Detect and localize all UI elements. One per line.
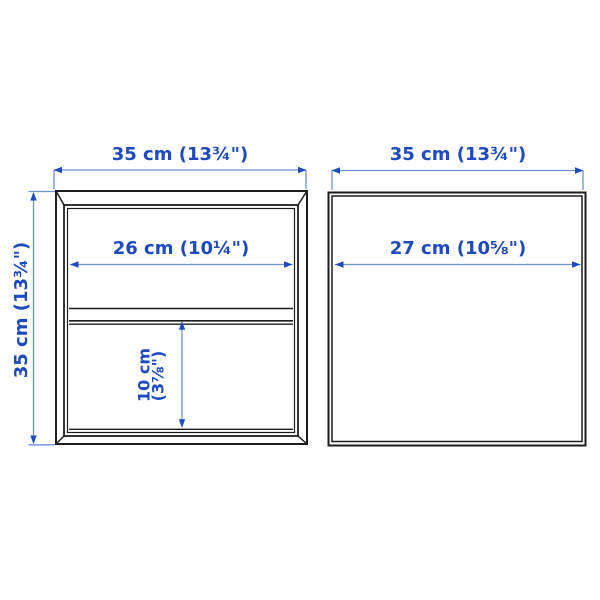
right-cabinet-inner-edge bbox=[332, 196, 582, 442]
left-frame-miter-bottom-left bbox=[56, 436, 64, 444]
product-dimension-diagram: 35 cm (13¾") 35 cm (13¾") 26 cm (10¼") 1… bbox=[0, 0, 600, 600]
right-width-label: 35 cm (13¾") bbox=[390, 144, 527, 165]
dimension-labels: 35 cm (13¾") 35 cm (13¾") 26 cm (10¼") 1… bbox=[11, 144, 526, 402]
right-cabinet bbox=[329, 193, 586, 446]
arrowhead-down-icon bbox=[179, 419, 185, 428]
left-inner-width-label: 26 cm (10¼") bbox=[113, 238, 250, 259]
arrowhead-left-icon bbox=[54, 167, 63, 173]
arrowhead-right-icon bbox=[284, 261, 293, 267]
left-drawer-height-label-inches: (3⅞") bbox=[149, 351, 168, 402]
left-frame-miter-bottom-right bbox=[298, 436, 307, 444]
left-frame-miter-top-left bbox=[56, 191, 64, 205]
dimension-lines bbox=[29, 170, 584, 445]
cabinet-outlines bbox=[56, 191, 586, 446]
left-width-label: 35 cm (13¾") bbox=[112, 144, 249, 165]
arrowhead-right-icon bbox=[298, 167, 307, 173]
arrowhead-right-icon bbox=[575, 167, 584, 173]
arrowhead-up-icon bbox=[30, 192, 36, 201]
arrowhead-up-icon bbox=[179, 321, 185, 330]
right-cabinet-outer-edge bbox=[329, 193, 586, 446]
left-frame-miter-top-right bbox=[298, 191, 307, 205]
arrowhead-left-icon bbox=[332, 167, 341, 173]
arrowhead-left-icon bbox=[70, 261, 79, 267]
arrowhead-left-icon bbox=[335, 261, 344, 267]
arrowhead-down-icon bbox=[30, 436, 36, 445]
arrowhead-right-icon bbox=[572, 261, 581, 267]
left-height-label: 35 cm (13¾") bbox=[11, 242, 32, 379]
right-inner-width-label: 27 cm (10⅝") bbox=[390, 238, 527, 259]
